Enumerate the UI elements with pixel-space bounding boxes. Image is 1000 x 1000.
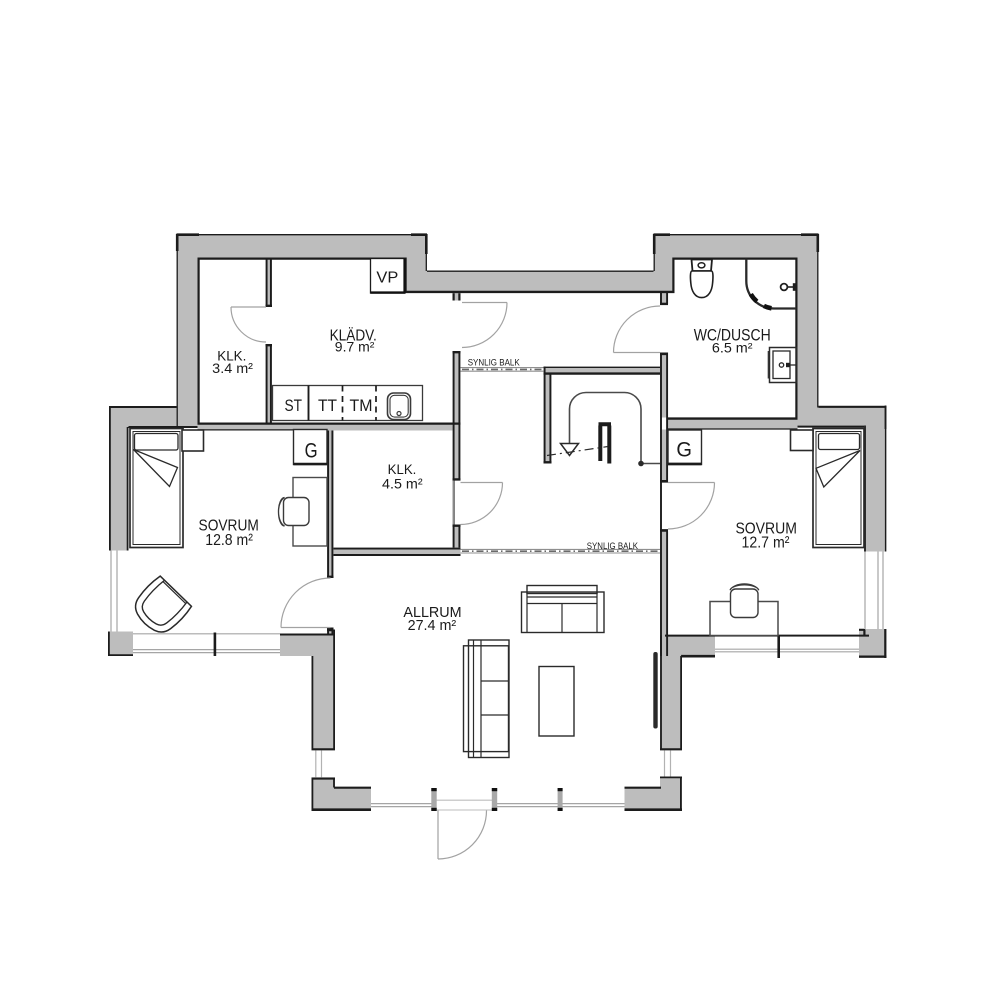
svg-text:TM: TM (350, 397, 373, 415)
svg-text:27.4 m²: 27.4 m² (408, 618, 457, 634)
svg-text:SYNLIG BALK: SYNLIG BALK (587, 540, 639, 551)
svg-text:12.7 m²: 12.7 m² (742, 534, 790, 551)
svg-text:VP: VP (376, 269, 398, 286)
svg-text:G: G (676, 437, 692, 461)
svg-text:TT: TT (318, 397, 337, 415)
svg-text:4.5 m²: 4.5 m² (382, 477, 423, 493)
svg-text:9.7 m²: 9.7 m² (335, 339, 375, 354)
svg-text:6.5 m²: 6.5 m² (712, 339, 753, 355)
svg-text:G: G (305, 438, 318, 462)
svg-text:ST: ST (284, 397, 302, 415)
svg-text:12.8 m²: 12.8 m² (205, 532, 253, 549)
svg-text:3.4 m²: 3.4 m² (212, 361, 253, 377)
svg-text:SYNLIG BALK: SYNLIG BALK (468, 357, 521, 368)
